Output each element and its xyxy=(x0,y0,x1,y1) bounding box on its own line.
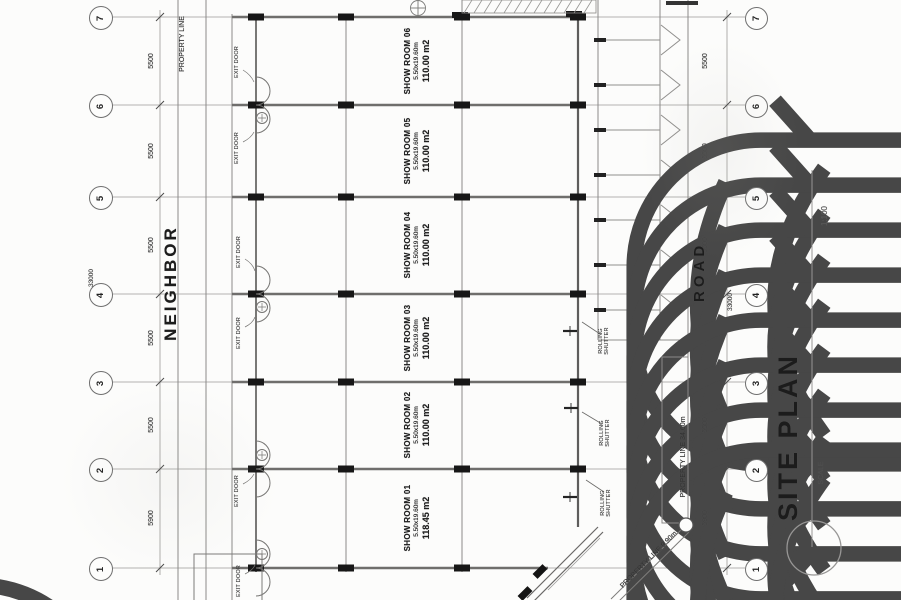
dim-label: 5500 xyxy=(148,41,158,81)
dim-total-label: 33000 xyxy=(89,258,99,298)
dim-label: 5900 xyxy=(702,498,712,538)
dim-label: 5500 xyxy=(148,225,158,265)
grid-bubble-right-6: 6 xyxy=(745,95,768,118)
neighbor-label: NEIGHBOR xyxy=(162,213,182,353)
grid-bubble-left-1: 1 xyxy=(89,557,113,581)
grid-bubble-left-7: 7 xyxy=(89,6,113,30)
site-plan-drawing: 7 6 5 4 3 2 1 7 6 5 4 3 2 1 5500 5500 55… xyxy=(0,0,901,600)
grid-bubble-right-2: 2 xyxy=(745,459,768,482)
shutter-marks xyxy=(563,326,578,502)
showroom-label-01: SHOW ROOM 01 5.50x19.60m 118.45 m2 xyxy=(403,463,443,573)
property-line-label-road: PROPERTY LINE 34.60m xyxy=(680,402,690,512)
dim-label: 5500 xyxy=(148,405,158,445)
grid-bubble-right-7: 7 xyxy=(745,7,768,30)
grid-bubble-left-2: 2 xyxy=(89,458,113,482)
grid-bubble-left-3: 3 xyxy=(89,371,113,395)
grid-bubble-right-3: 3 xyxy=(745,372,768,395)
exit-door-label: EXIT DOOR xyxy=(235,45,243,79)
rolling-shutter-label: ROLLING SHUTTER xyxy=(599,322,611,360)
grid-bubble-right-1: 1 xyxy=(745,558,768,581)
dim-label: 5500 xyxy=(702,131,712,171)
rolling-shutter-label: ROLLING SHUTTER xyxy=(600,414,612,452)
dim-label: 5500 xyxy=(702,405,712,445)
exit-door-label: EXIT DOOR xyxy=(237,235,245,269)
road-label: ROAD xyxy=(692,242,710,302)
parked-cars xyxy=(0,101,901,600)
scale-value: 1:100 xyxy=(821,196,831,236)
rolling-shutter-label: ROLLING SHUTTER xyxy=(601,484,613,522)
exit-door-label: EXIT DOOR xyxy=(237,564,245,598)
dim-label: 5900 xyxy=(148,498,158,538)
dim-total-label: 33000 xyxy=(728,282,738,322)
dim-label: 5500 xyxy=(702,41,712,81)
dim-label: 5500 xyxy=(148,318,158,358)
scale-label: SCALE xyxy=(818,453,828,493)
grid-bubble-left-5: 5 xyxy=(89,186,113,210)
exit-door-label: EXIT DOOR xyxy=(235,474,243,508)
grid-bubble-right-5: 5 xyxy=(745,187,768,210)
exit-door-label: EXIT DOOR xyxy=(237,316,245,350)
car-icon xyxy=(0,585,144,600)
exit-door-label: EXIT DOOR xyxy=(235,131,243,165)
page-title: SITE PLAN xyxy=(774,347,810,527)
property-line-label-left: PROPERTY LINE xyxy=(179,9,189,79)
dim-label: 5500 xyxy=(148,131,158,171)
corner-wall xyxy=(527,527,603,600)
garage-stall xyxy=(194,554,262,600)
parking-ticks xyxy=(594,38,606,312)
grid-bubble-right-4: 4 xyxy=(745,284,768,307)
grid-bubble-left-6: 6 xyxy=(89,94,113,118)
